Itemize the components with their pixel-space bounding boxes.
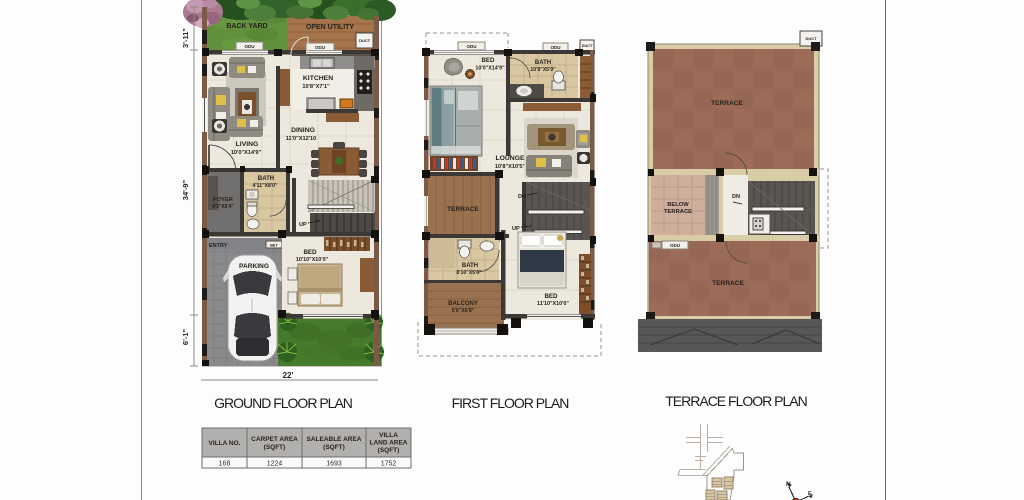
svg-text:DN: DN [518, 194, 526, 200]
svg-text:10'0"X14'9": 10'0"X14'9" [475, 66, 505, 72]
svg-text:BET: BET [270, 244, 278, 248]
svg-text:DUCT: DUCT [582, 44, 593, 48]
svg-text:(SQFT): (SQFT) [378, 447, 400, 454]
svg-text:10'8"X7'1": 10'8"X7'1" [302, 84, 330, 90]
svg-text:(SQFT): (SQFT) [264, 444, 286, 451]
svg-text:22': 22' [283, 371, 294, 380]
svg-text:UP: UP [512, 226, 520, 232]
svg-text:ODU: ODU [315, 45, 325, 50]
svg-text:UP: UP [299, 222, 307, 228]
svg-text:VILLA: VILLA [379, 432, 398, 439]
svg-text:10'8"X5'9": 10'8"X5'9" [530, 67, 556, 73]
svg-text:34'-9": 34'-9" [181, 179, 190, 200]
svg-text:(SQFT): (SQFT) [323, 444, 345, 451]
svg-text:TERRACE: TERRACE [711, 100, 743, 107]
svg-text:BACK YARD: BACK YARD [226, 23, 267, 30]
svg-text:BATH: BATH [462, 263, 478, 269]
svg-text:10'10"X10'0": 10'10"X10'0" [296, 257, 329, 263]
svg-text:1224: 1224 [267, 461, 283, 468]
svg-text:LIVING: LIVING [236, 141, 259, 148]
svg-text:BELOW: BELOW [667, 202, 689, 208]
svg-text:11'0"X12'10: 11'0"X12'10 [286, 136, 317, 142]
svg-text:TERRACE: TERRACE [712, 280, 744, 287]
svg-text:5'6"X6'8": 5'6"X6'8" [452, 308, 475, 314]
svg-text:10'0"X14'9": 10'0"X14'9" [231, 150, 262, 156]
svg-text:BATH: BATH [535, 60, 551, 66]
svg-text:BED: BED [481, 57, 495, 64]
svg-text:N: N [786, 481, 791, 488]
svg-text:TERRACE: TERRACE [447, 206, 479, 213]
svg-text:4'11"X8'0": 4'11"X8'0" [253, 183, 279, 189]
svg-text:KITCHEN: KITCHEN [303, 75, 333, 82]
svg-text:10'8"X10'5": 10'8"X10'5" [495, 164, 526, 170]
svg-text:OPEN UTILITY: OPEN UTILITY [306, 24, 355, 31]
svg-text:GROUND FLOOR PLAN: GROUND FLOOR PLAN [214, 395, 352, 411]
svg-text:CARPET AREA: CARPET AREA [251, 436, 298, 443]
svg-text:BALCONY: BALCONY [448, 301, 478, 307]
svg-text:FIRST FLOOR PLAN: FIRST FLOOR PLAN [452, 395, 569, 411]
svg-text:6'-1": 6'-1" [181, 328, 190, 345]
svg-text:BED: BED [544, 293, 558, 300]
svg-text:11'10"X10'0": 11'10"X10'0" [537, 301, 569, 307]
svg-text:4'3"X5'4": 4'3"X5'4" [212, 204, 234, 210]
svg-text:FOYER: FOYER [213, 197, 234, 203]
svg-text:BATH: BATH [258, 176, 274, 182]
svg-text:3'-11": 3'-11" [181, 28, 190, 48]
svg-text:DINING: DINING [291, 127, 315, 134]
svg-text:DN: DN [732, 194, 740, 200]
svg-text:SALEABLE AREA: SALEABLE AREA [306, 436, 361, 443]
svg-text:ODU: ODU [245, 44, 255, 49]
svg-text:ENTRY: ENTRY [209, 243, 228, 249]
svg-text:BED: BED [303, 249, 317, 256]
svg-text:VILLA NO.: VILLA NO. [209, 440, 241, 447]
svg-text:ODU: ODU [670, 243, 680, 248]
svg-text:1752: 1752 [381, 461, 397, 468]
svg-text:E: E [808, 491, 812, 497]
svg-text:ODU: ODU [467, 44, 477, 49]
svg-text:168: 168 [219, 461, 231, 468]
svg-text:ODU: ODU [551, 45, 561, 50]
svg-text:TERRACE: TERRACE [664, 209, 692, 215]
svg-text:TERRACE FLOOR PLAN: TERRACE FLOOR PLAN [665, 393, 806, 409]
svg-text:LOUNGE: LOUNGE [495, 155, 525, 162]
svg-text:DUCT: DUCT [359, 38, 371, 43]
svg-text:8'10"X5'0": 8'10"X5'0" [456, 270, 482, 276]
svg-text:PARKING: PARKING [239, 263, 269, 270]
svg-text:LAND AREA: LAND AREA [369, 440, 407, 447]
svg-text:DUCT: DUCT [805, 36, 817, 41]
svg-text:1693: 1693 [326, 461, 342, 468]
